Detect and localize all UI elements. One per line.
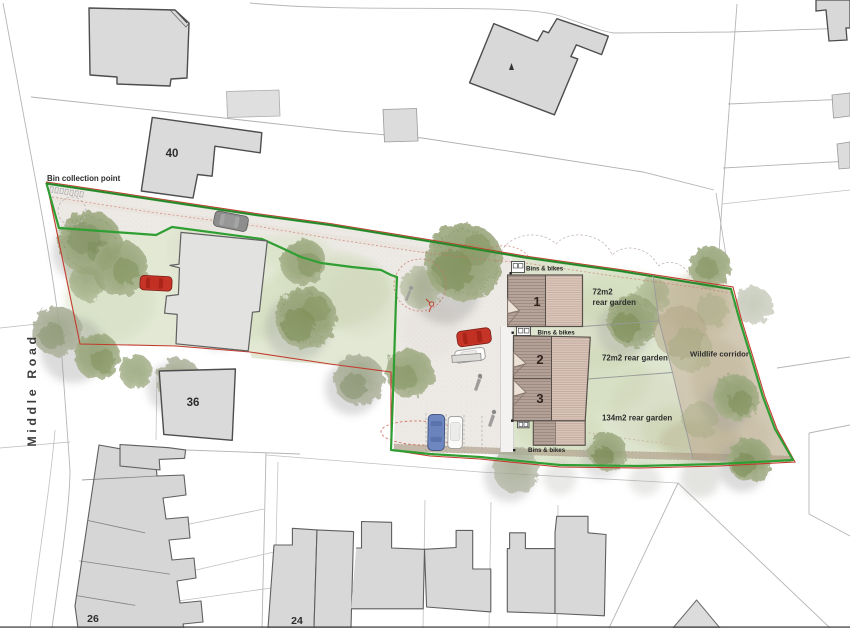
svg-text:Bin collection point: Bin collection point — [47, 174, 121, 183]
svg-text:72m2: 72m2 — [593, 288, 614, 297]
svg-text:72m2 rear garden: 72m2 rear garden — [602, 354, 668, 363]
svg-text:Bins & bikes: Bins & bikes — [526, 266, 564, 273]
svg-text:40: 40 — [166, 148, 179, 160]
svg-text:Bins & bikes: Bins & bikes — [528, 447, 566, 454]
svg-text:24: 24 — [291, 615, 303, 627]
svg-text:Middle Road: Middle Road — [25, 333, 39, 446]
svg-text:36: 36 — [187, 397, 200, 409]
svg-text:Bins & bikes: Bins & bikes — [538, 329, 576, 336]
svg-text:2: 2 — [536, 352, 543, 367]
svg-text:1: 1 — [533, 294, 540, 309]
svg-text:Wildlife corridor: Wildlife corridor — [690, 350, 749, 359]
svg-text:3: 3 — [536, 391, 543, 406]
svg-text:26: 26 — [87, 613, 99, 625]
svg-text:134m2 rear garden: 134m2 rear garden — [602, 414, 672, 423]
svg-text:rear garden: rear garden — [593, 298, 637, 307]
